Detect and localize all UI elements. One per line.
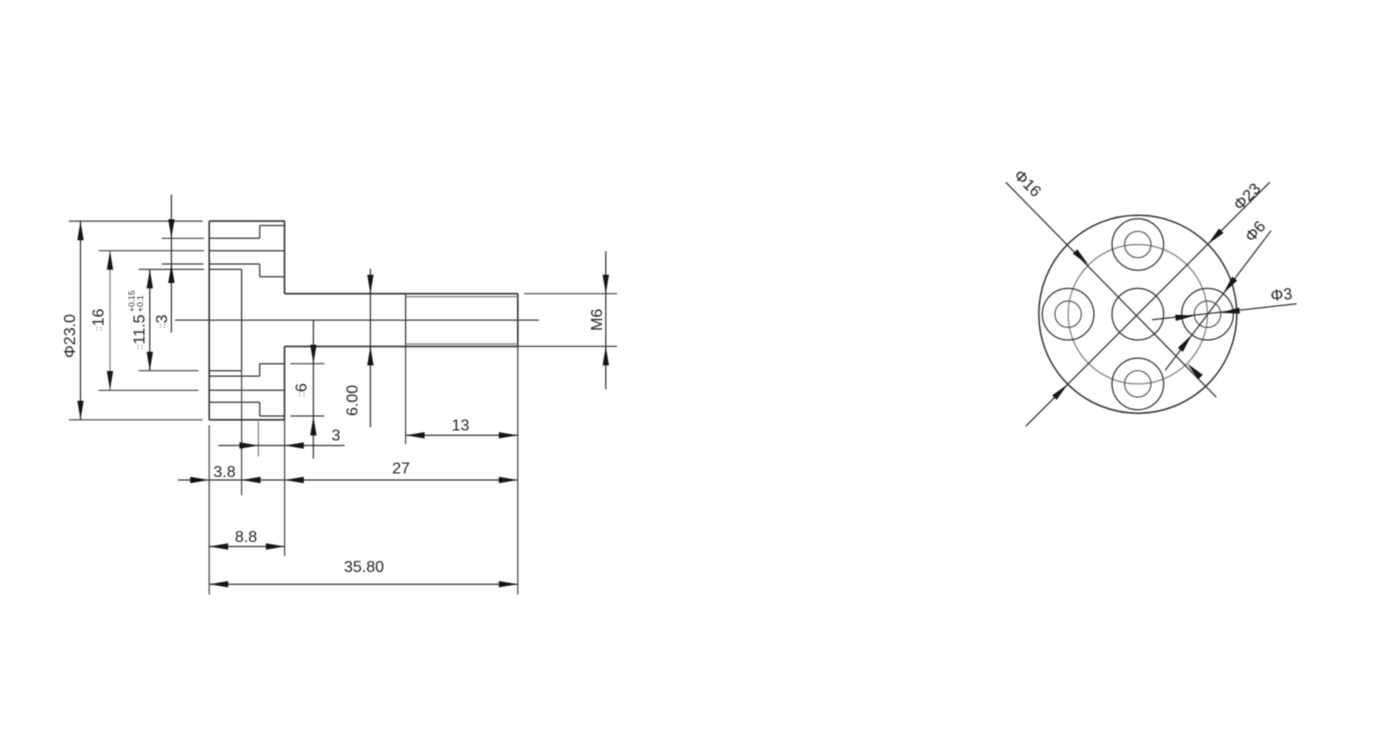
svg-text:3.8: 3.8	[213, 464, 235, 481]
svg-text:Φ23: Φ23	[1231, 180, 1265, 214]
svg-text:13: 13	[452, 418, 470, 435]
svg-text:M6: M6	[589, 309, 606, 331]
svg-text:Φ23.0: Φ23.0	[62, 314, 79, 358]
svg-text:::3: ::3	[154, 314, 171, 328]
svg-text:Φ16: Φ16	[1010, 167, 1044, 201]
svg-text:::11.5: ::11.5	[132, 314, 149, 349]
svg-text:8.8: 8.8	[235, 529, 257, 546]
svg-text:Φ6: Φ6	[1242, 218, 1269, 246]
svg-text:6.00: 6.00	[345, 385, 362, 416]
svg-text:3: 3	[332, 428, 341, 445]
svg-text:Φ3: Φ3	[1270, 286, 1293, 305]
svg-text:::6: ::6	[294, 383, 311, 397]
svg-text:::16: ::16	[91, 308, 108, 331]
svg-text:+0.1: +0.1	[135, 295, 145, 312]
svg-text:35.80: 35.80	[344, 559, 384, 576]
svg-text:27: 27	[392, 461, 410, 478]
